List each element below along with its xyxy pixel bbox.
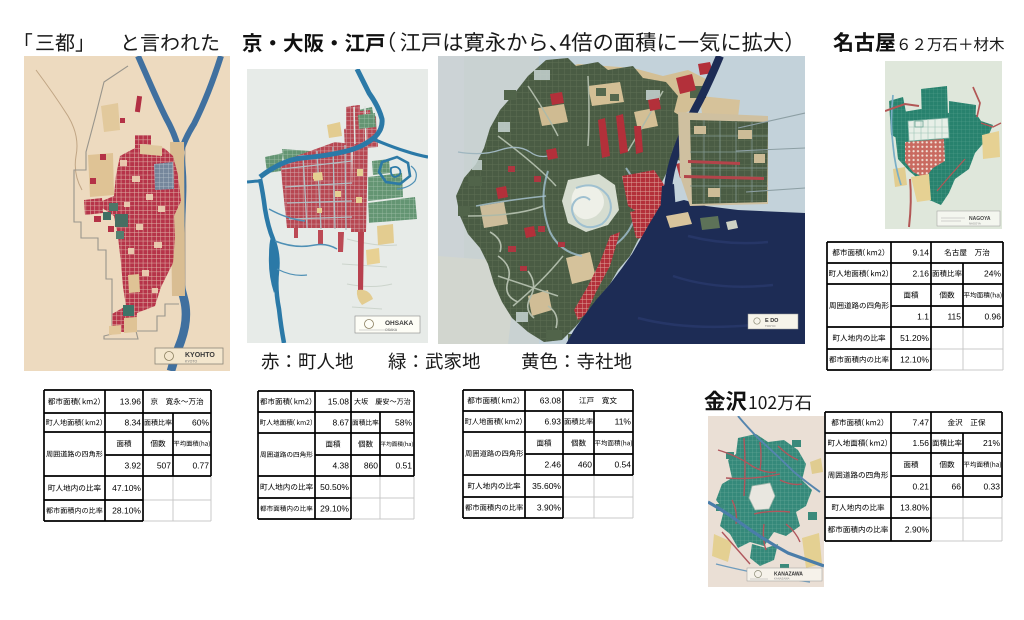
svg-text:7.47: 7.47 [912, 418, 929, 428]
svg-text:0.21: 0.21 [912, 482, 929, 492]
svg-text:507: 507 [157, 461, 171, 471]
svg-text:0.54: 0.54 [614, 460, 631, 470]
svg-text:115: 115 [947, 312, 961, 322]
svg-text:13.80%: 13.80% [900, 503, 929, 513]
svg-text:63.08: 63.08 [540, 396, 562, 406]
svg-text:50.50%: 50.50% [320, 482, 349, 492]
svg-text:0.77: 0.77 [192, 461, 209, 471]
svg-text:0.51: 0.51 [395, 461, 412, 471]
svg-text:8.34: 8.34 [124, 418, 141, 428]
svg-text:47.10%: 47.10% [112, 483, 141, 493]
svg-text:51.20%: 51.20% [900, 333, 929, 343]
svg-text:24%: 24% [984, 269, 1001, 279]
svg-text:28.10%: 28.10% [112, 506, 141, 516]
svg-text:11%: 11% [615, 417, 632, 427]
svg-text:29.10%: 29.10% [320, 504, 349, 514]
svg-text:2.90%: 2.90% [905, 525, 930, 535]
svg-text:35.60%: 35.60% [532, 481, 561, 491]
svg-text:2.46: 2.46 [544, 460, 561, 470]
svg-text:12.10%: 12.10% [900, 355, 929, 365]
svg-text:60%: 60% [192, 418, 209, 428]
svg-text:66: 66 [952, 482, 962, 492]
svg-text:21%: 21% [983, 438, 1000, 448]
svg-text:0.33: 0.33 [983, 482, 1000, 492]
svg-text:0.96: 0.96 [984, 312, 1001, 322]
svg-text:1.1: 1.1 [917, 312, 929, 322]
svg-text:15.08: 15.08 [328, 397, 350, 407]
svg-text:2.16: 2.16 [912, 269, 929, 279]
svg-text:6.93: 6.93 [544, 417, 561, 427]
svg-text:3.92: 3.92 [124, 461, 141, 471]
svg-text:860: 860 [364, 461, 378, 471]
svg-text:8.67: 8.67 [332, 418, 349, 428]
svg-text:1.56: 1.56 [912, 438, 929, 448]
svg-text:460: 460 [578, 460, 592, 470]
svg-text:13.96: 13.96 [120, 397, 142, 407]
svg-text:58%: 58% [395, 418, 412, 428]
svg-text:3.90%: 3.90% [537, 503, 562, 513]
svg-text:9.14: 9.14 [912, 248, 929, 258]
svg-text:4.38: 4.38 [332, 461, 349, 471]
